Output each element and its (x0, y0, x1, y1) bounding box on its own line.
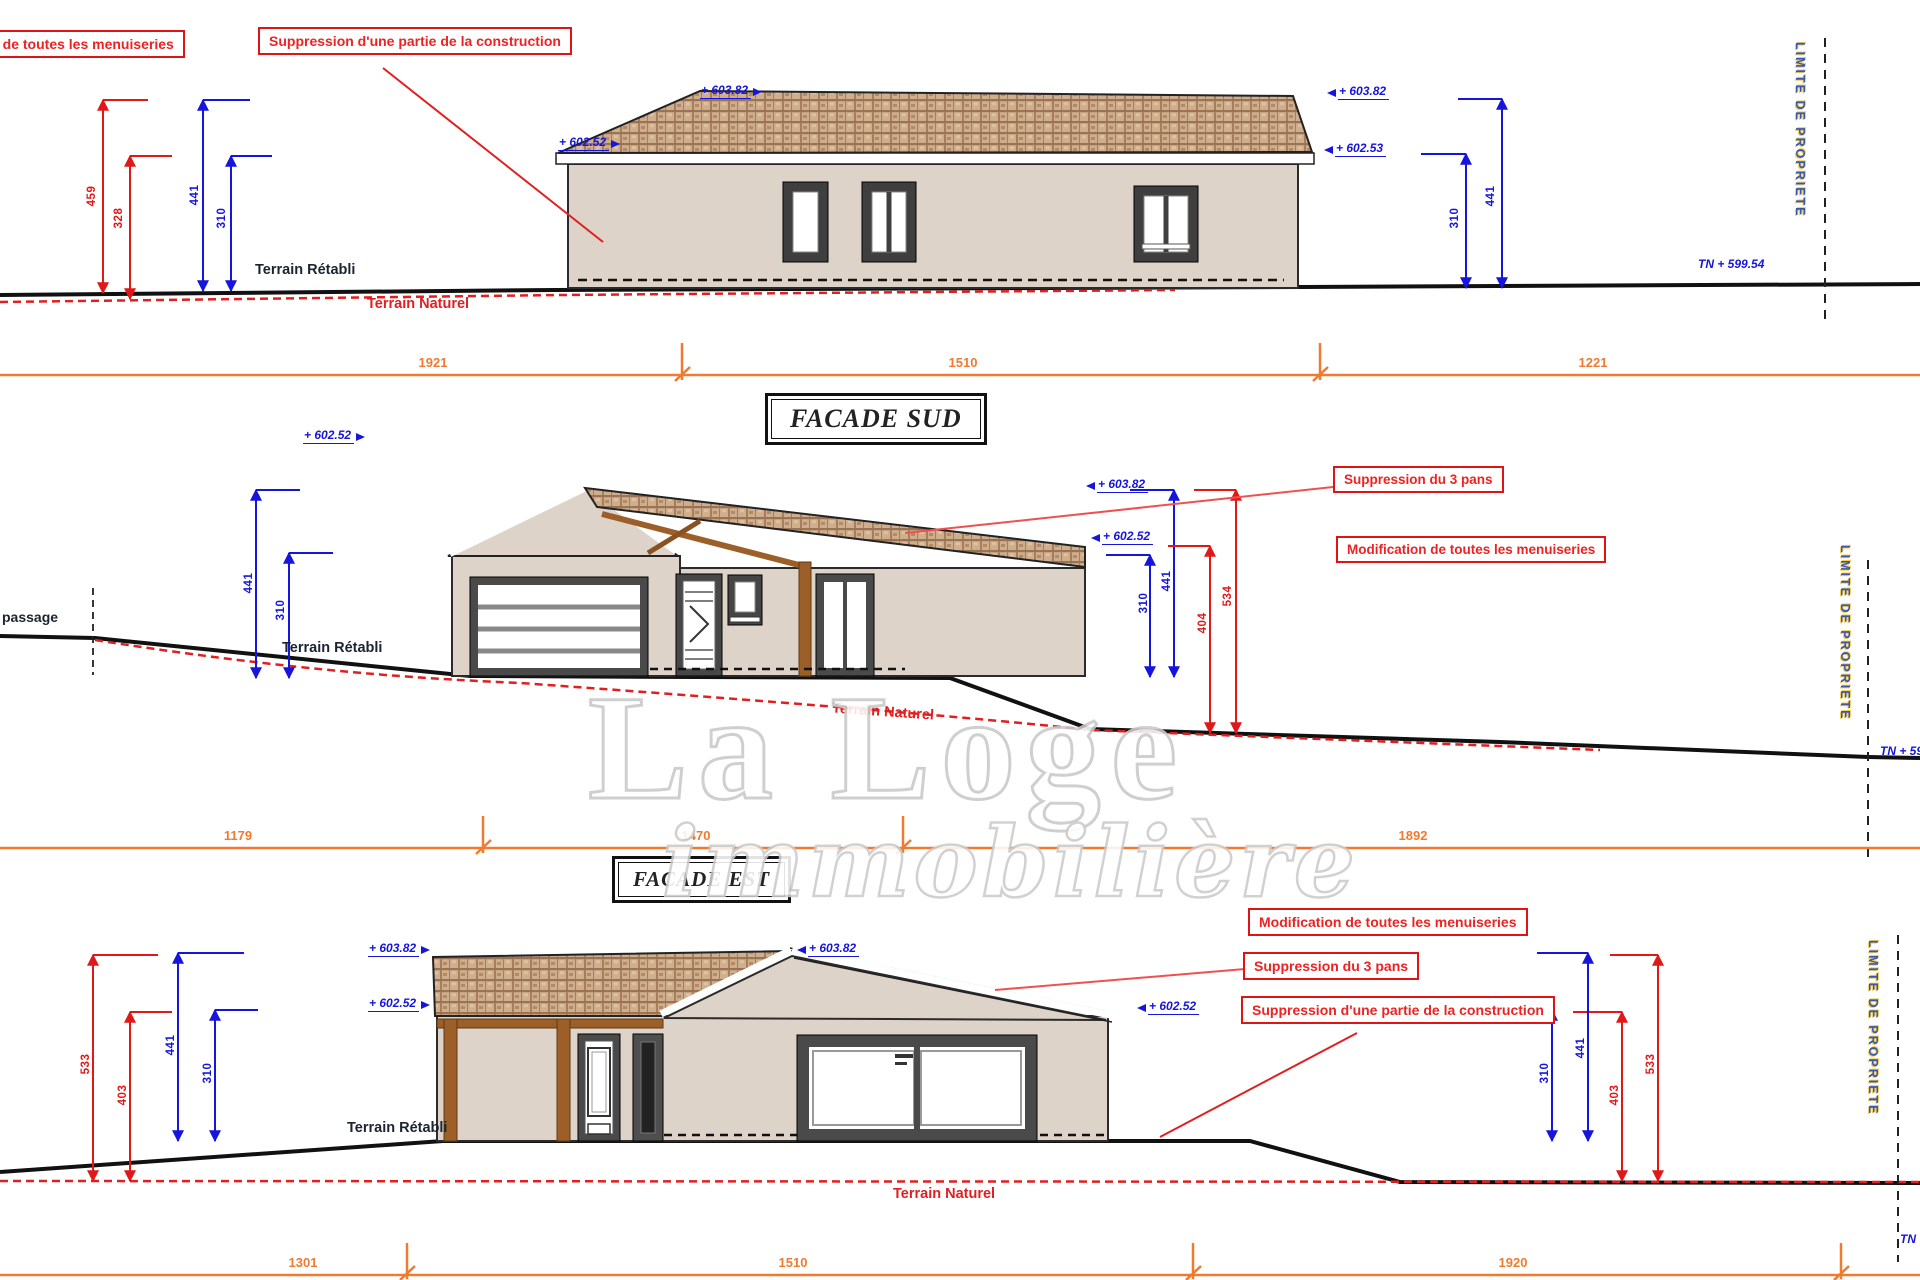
arrow-icon (753, 88, 762, 96)
title-facade-est: FACADE EST (612, 856, 791, 903)
glass-door (816, 574, 874, 676)
arrow-icon (421, 946, 430, 954)
elevation-marker: + 603.82 (1327, 84, 1389, 98)
window-1 (783, 182, 828, 262)
dim-1892: 1892 (1378, 828, 1448, 843)
title-facade-sud: FACADE SUD (765, 393, 987, 445)
annotation-leader (995, 969, 1245, 990)
wood-beam (437, 1019, 663, 1028)
annotation-box-menuiseries: fication de toutes les menuiseries (0, 30, 185, 58)
annotation-box-suppression-3pans: Suppression du 3 pans (1333, 466, 1504, 493)
dim-459: 459 (86, 176, 98, 216)
entry-door (578, 1034, 620, 1141)
terrain-retabli-label: Terrain Rétabli (255, 262, 355, 278)
elevation-marker: + 603.82 (700, 83, 762, 97)
facade-est-drawing (0, 487, 1920, 862)
terrain-naturel-label: Terrain Naturel (367, 296, 469, 312)
small-window (728, 575, 762, 625)
dim-1470: 1470 (661, 828, 731, 843)
dim-441-right: 441 (1161, 561, 1173, 601)
facade-third-drawing (0, 935, 1920, 1280)
tn-level-label: TN + (1900, 1232, 1920, 1246)
arrow-icon (611, 140, 620, 148)
elevation-marker: + 602.52 (303, 428, 365, 442)
window-2 (862, 182, 916, 262)
terrain-naturel-line (0, 1181, 1920, 1182)
dim-1921: 1921 (398, 355, 468, 370)
dim-1179: 1179 (203, 828, 273, 843)
elevation-marker: + 603.82 (797, 941, 859, 955)
dim-328: 328 (113, 198, 125, 238)
arrow-icon (797, 946, 806, 954)
annotation-leader (1160, 1033, 1357, 1137)
property-limit-label: LIMITE DE PROPRIETE (1866, 940, 1880, 1116)
facade-sud-drawing (0, 38, 1920, 381)
dim-441-right: 441 (1485, 176, 1497, 216)
elevation-marker: + 602.52 (1091, 529, 1153, 543)
elevation-drawing-sheet: fication de toutes les menuiseries Suppr… (0, 0, 1920, 1280)
dim-1510: 1510 (928, 355, 998, 370)
wood-post (799, 562, 811, 676)
dim-441-left: 441 (189, 175, 201, 215)
tn-level-label: TN + 59 (1880, 744, 1920, 758)
dim-441-right: 441 (1575, 1028, 1587, 1068)
arrow-icon (356, 433, 365, 441)
dim-310-left: 310 (202, 1053, 214, 1093)
passage-label: passage (2, 609, 58, 625)
dim-441-left: 441 (165, 1025, 177, 1065)
dim-310-right: 310 (1138, 583, 1150, 623)
dim-403-right: 403 (1609, 1075, 1621, 1115)
arrow-icon (1137, 1004, 1146, 1012)
property-limit-label: LIMITE DE PROPRIETE (1838, 545, 1852, 721)
elevation-marker: + 602.52 (1137, 999, 1199, 1013)
arrow-icon (1327, 89, 1336, 97)
dim-1920: 1920 (1478, 1255, 1548, 1270)
dim-403-left: 403 (117, 1075, 129, 1115)
annotation-box-modification: Modification de toutes les menuiseries (1248, 908, 1528, 936)
dim-310-left: 310 (275, 590, 287, 630)
dim-534: 534 (1222, 576, 1234, 616)
annotation-box-suppression-3pans: Suppression du 3 pans (1243, 952, 1419, 980)
dim-1510: 1510 (758, 1255, 828, 1270)
dim-533-left: 533 (80, 1044, 92, 1084)
tn-level-label: TN + 599.54 (1698, 257, 1764, 271)
fascia (556, 153, 1314, 164)
arrow-icon (421, 1001, 430, 1009)
elevation-marker: + 602.52 (368, 996, 430, 1010)
terrain-retabli-label: Terrain Rétabli (282, 640, 382, 656)
elevation-marker: + 603.82 (368, 941, 430, 955)
orange-dimension-line (0, 816, 1920, 854)
elevation-marker: + 603.82 (1086, 477, 1148, 491)
elevation-marker: + 602.53 (1324, 141, 1386, 155)
annotation-box-suppression-partie: Suppression d'une partie de la construct… (1241, 996, 1555, 1024)
property-limit-label: LIMITE DE PROPRIETE (1793, 42, 1807, 218)
annotation-box-modification: Modification de toutes les menuiseries (1336, 536, 1606, 563)
window-3 (1134, 186, 1198, 262)
garage-door (470, 577, 648, 676)
annotation-leader (905, 487, 1333, 533)
dim-310-right: 310 (1449, 198, 1461, 238)
dim-441-left: 441 (243, 563, 255, 603)
dim-404: 404 (1197, 603, 1209, 643)
dim-1221: 1221 (1558, 355, 1628, 370)
elevation-marker: + 602.52 (558, 135, 620, 149)
dim-310-left: 310 (216, 198, 228, 238)
wood-post (557, 1019, 570, 1141)
entry-door (676, 574, 722, 676)
dim-1301: 1301 (268, 1255, 338, 1270)
terrain-retabli-label: Terrain Rétabli (347, 1120, 447, 1136)
annotation-box-suppression-partie: Suppression d'une partie de la construct… (258, 27, 572, 55)
sliding-glass-door (797, 1035, 1037, 1141)
arrow-icon (1091, 534, 1100, 542)
arrow-icon (1324, 146, 1333, 154)
terrain-retabli-line (0, 1141, 1920, 1183)
terrain-naturel-label: Terrain Naturel (893, 1186, 995, 1202)
narrow-window (633, 1034, 663, 1141)
tiled-roof (558, 91, 1312, 153)
dim-310-right: 310 (1539, 1053, 1551, 1093)
arrow-icon (1086, 482, 1095, 490)
dim-533-right: 533 (1645, 1044, 1657, 1084)
